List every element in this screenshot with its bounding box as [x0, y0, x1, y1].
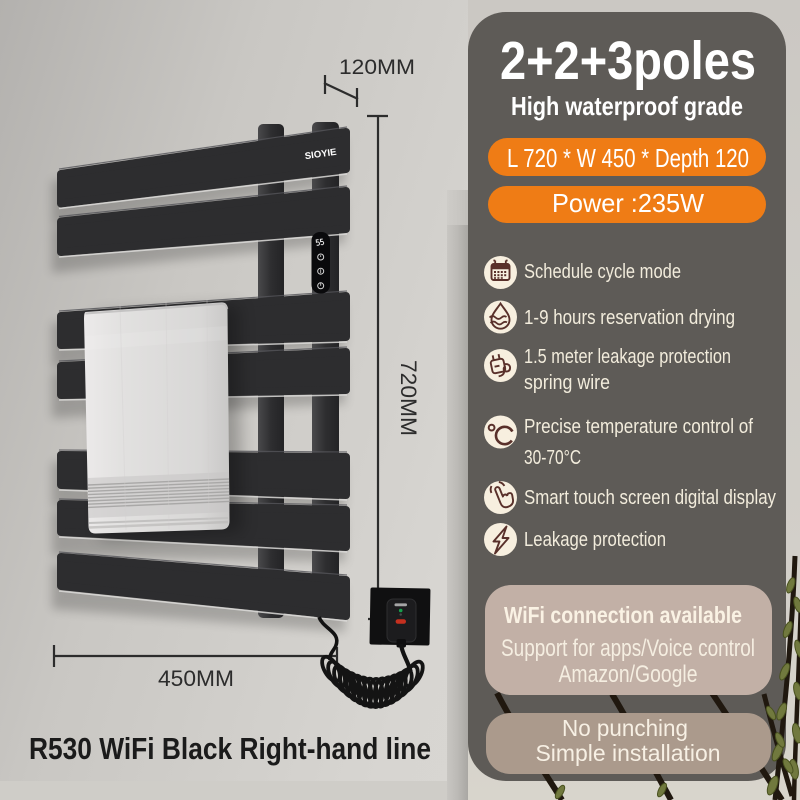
svg-text:High waterproof grade: High waterproof grade: [511, 91, 743, 121]
svg-text:720MM: 720MM: [396, 360, 421, 436]
svg-text:Precise temperature control of: Precise temperature control of: [524, 416, 753, 438]
svg-text:120MM: 120MM: [339, 55, 415, 79]
svg-text:Schedule cycle mode: Schedule cycle mode: [524, 261, 681, 283]
svg-text:WiFi connection available: WiFi connection available: [504, 602, 742, 628]
svg-text:1-9 hours reservation drying: 1-9 hours reservation drying: [524, 307, 735, 329]
svg-text:spring wire: spring wire: [524, 372, 610, 394]
svg-text:Smart touch screen digital dis: Smart touch screen digital display: [524, 487, 776, 509]
svg-text:Support for apps/Voice control: Support for apps/Voice control: [501, 635, 755, 662]
svg-text:L 720 * W 450 * Depth 120: L 720 * W 450 * Depth 120: [507, 143, 749, 173]
svg-text:1.5 meter leakage protection: 1.5 meter leakage protection: [524, 346, 731, 368]
svg-text:Simple installation: Simple installation: [536, 740, 721, 766]
svg-text:Leakage protection: Leakage protection: [524, 529, 666, 551]
svg-text:No punching: No punching: [562, 715, 688, 741]
svg-text:Power :235W: Power :235W: [552, 188, 704, 218]
svg-text:R530 WiFi Black Right-hand lin: R530 WiFi Black Right-hand line: [29, 731, 431, 766]
svg-text:450MM: 450MM: [158, 666, 234, 691]
svg-text:2+2+3poles: 2+2+3poles: [500, 31, 756, 91]
svg-text:Amazon/Google: Amazon/Google: [559, 661, 698, 688]
svg-text:30-70°C: 30-70°C: [524, 447, 581, 469]
